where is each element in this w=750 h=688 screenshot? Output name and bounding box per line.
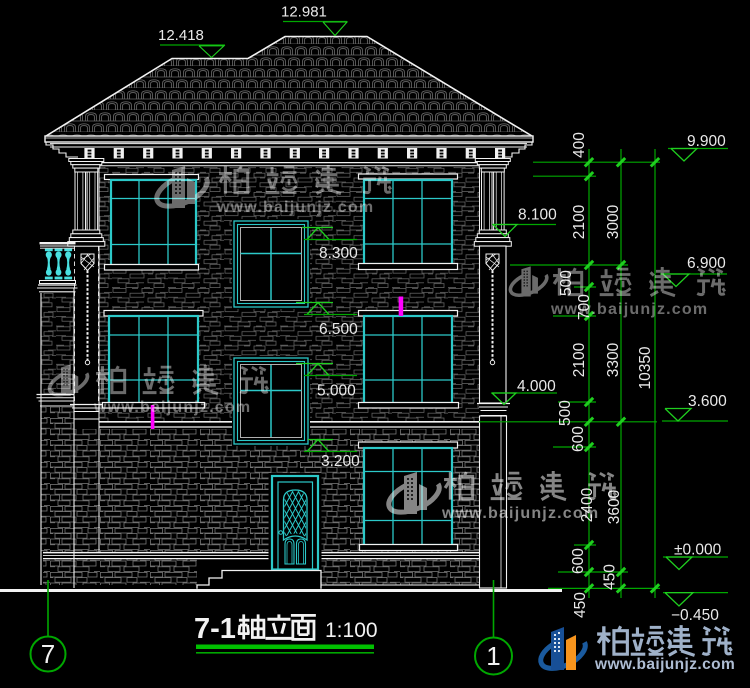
- svg-text:12.981: 12.981: [281, 4, 327, 21]
- svg-text:7: 7: [41, 639, 55, 669]
- svg-text:450: 450: [572, 592, 589, 618]
- svg-text:1: 1: [486, 641, 500, 671]
- svg-text:12.418: 12.418: [158, 27, 204, 44]
- svg-text:600: 600: [570, 548, 587, 574]
- svg-text:400: 400: [571, 132, 588, 158]
- svg-text:10350: 10350: [637, 346, 654, 389]
- svg-text:6.900: 6.900: [687, 255, 726, 272]
- svg-text:4.000: 4.000: [517, 378, 556, 395]
- svg-text:6.500: 6.500: [319, 321, 358, 338]
- svg-text:3.600: 3.600: [688, 393, 727, 410]
- svg-text:1:100: 1:100: [325, 619, 378, 642]
- svg-text:5.000: 5.000: [317, 383, 356, 400]
- svg-text:3000: 3000: [605, 204, 622, 239]
- svg-text:±0.000: ±0.000: [674, 542, 722, 559]
- svg-text:8.300: 8.300: [319, 245, 358, 262]
- svg-text:www.baijunjz.com: www.baijunjz.com: [441, 505, 599, 522]
- svg-text:9.900: 9.900: [687, 133, 726, 150]
- svg-text:www.baijunjz.com: www.baijunjz.com: [594, 656, 735, 673]
- svg-text:3300: 3300: [605, 342, 622, 377]
- svg-text:www.baijunjz.com: www.baijunjz.com: [550, 301, 708, 318]
- svg-text:3.200: 3.200: [321, 453, 360, 470]
- svg-text:www.baijunjz.com: www.baijunjz.com: [93, 399, 251, 416]
- svg-text:www.baijunjz.com: www.baijunjz.com: [216, 199, 374, 216]
- svg-text:8.100: 8.100: [518, 207, 557, 224]
- svg-text:−0.450: −0.450: [671, 607, 719, 624]
- svg-text:2100: 2100: [571, 342, 588, 377]
- svg-text:500: 500: [557, 400, 574, 426]
- svg-text:7-1: 7-1: [194, 613, 236, 645]
- svg-text:450: 450: [602, 564, 619, 590]
- svg-text:2100: 2100: [571, 204, 588, 239]
- svg-text:600: 600: [570, 426, 587, 452]
